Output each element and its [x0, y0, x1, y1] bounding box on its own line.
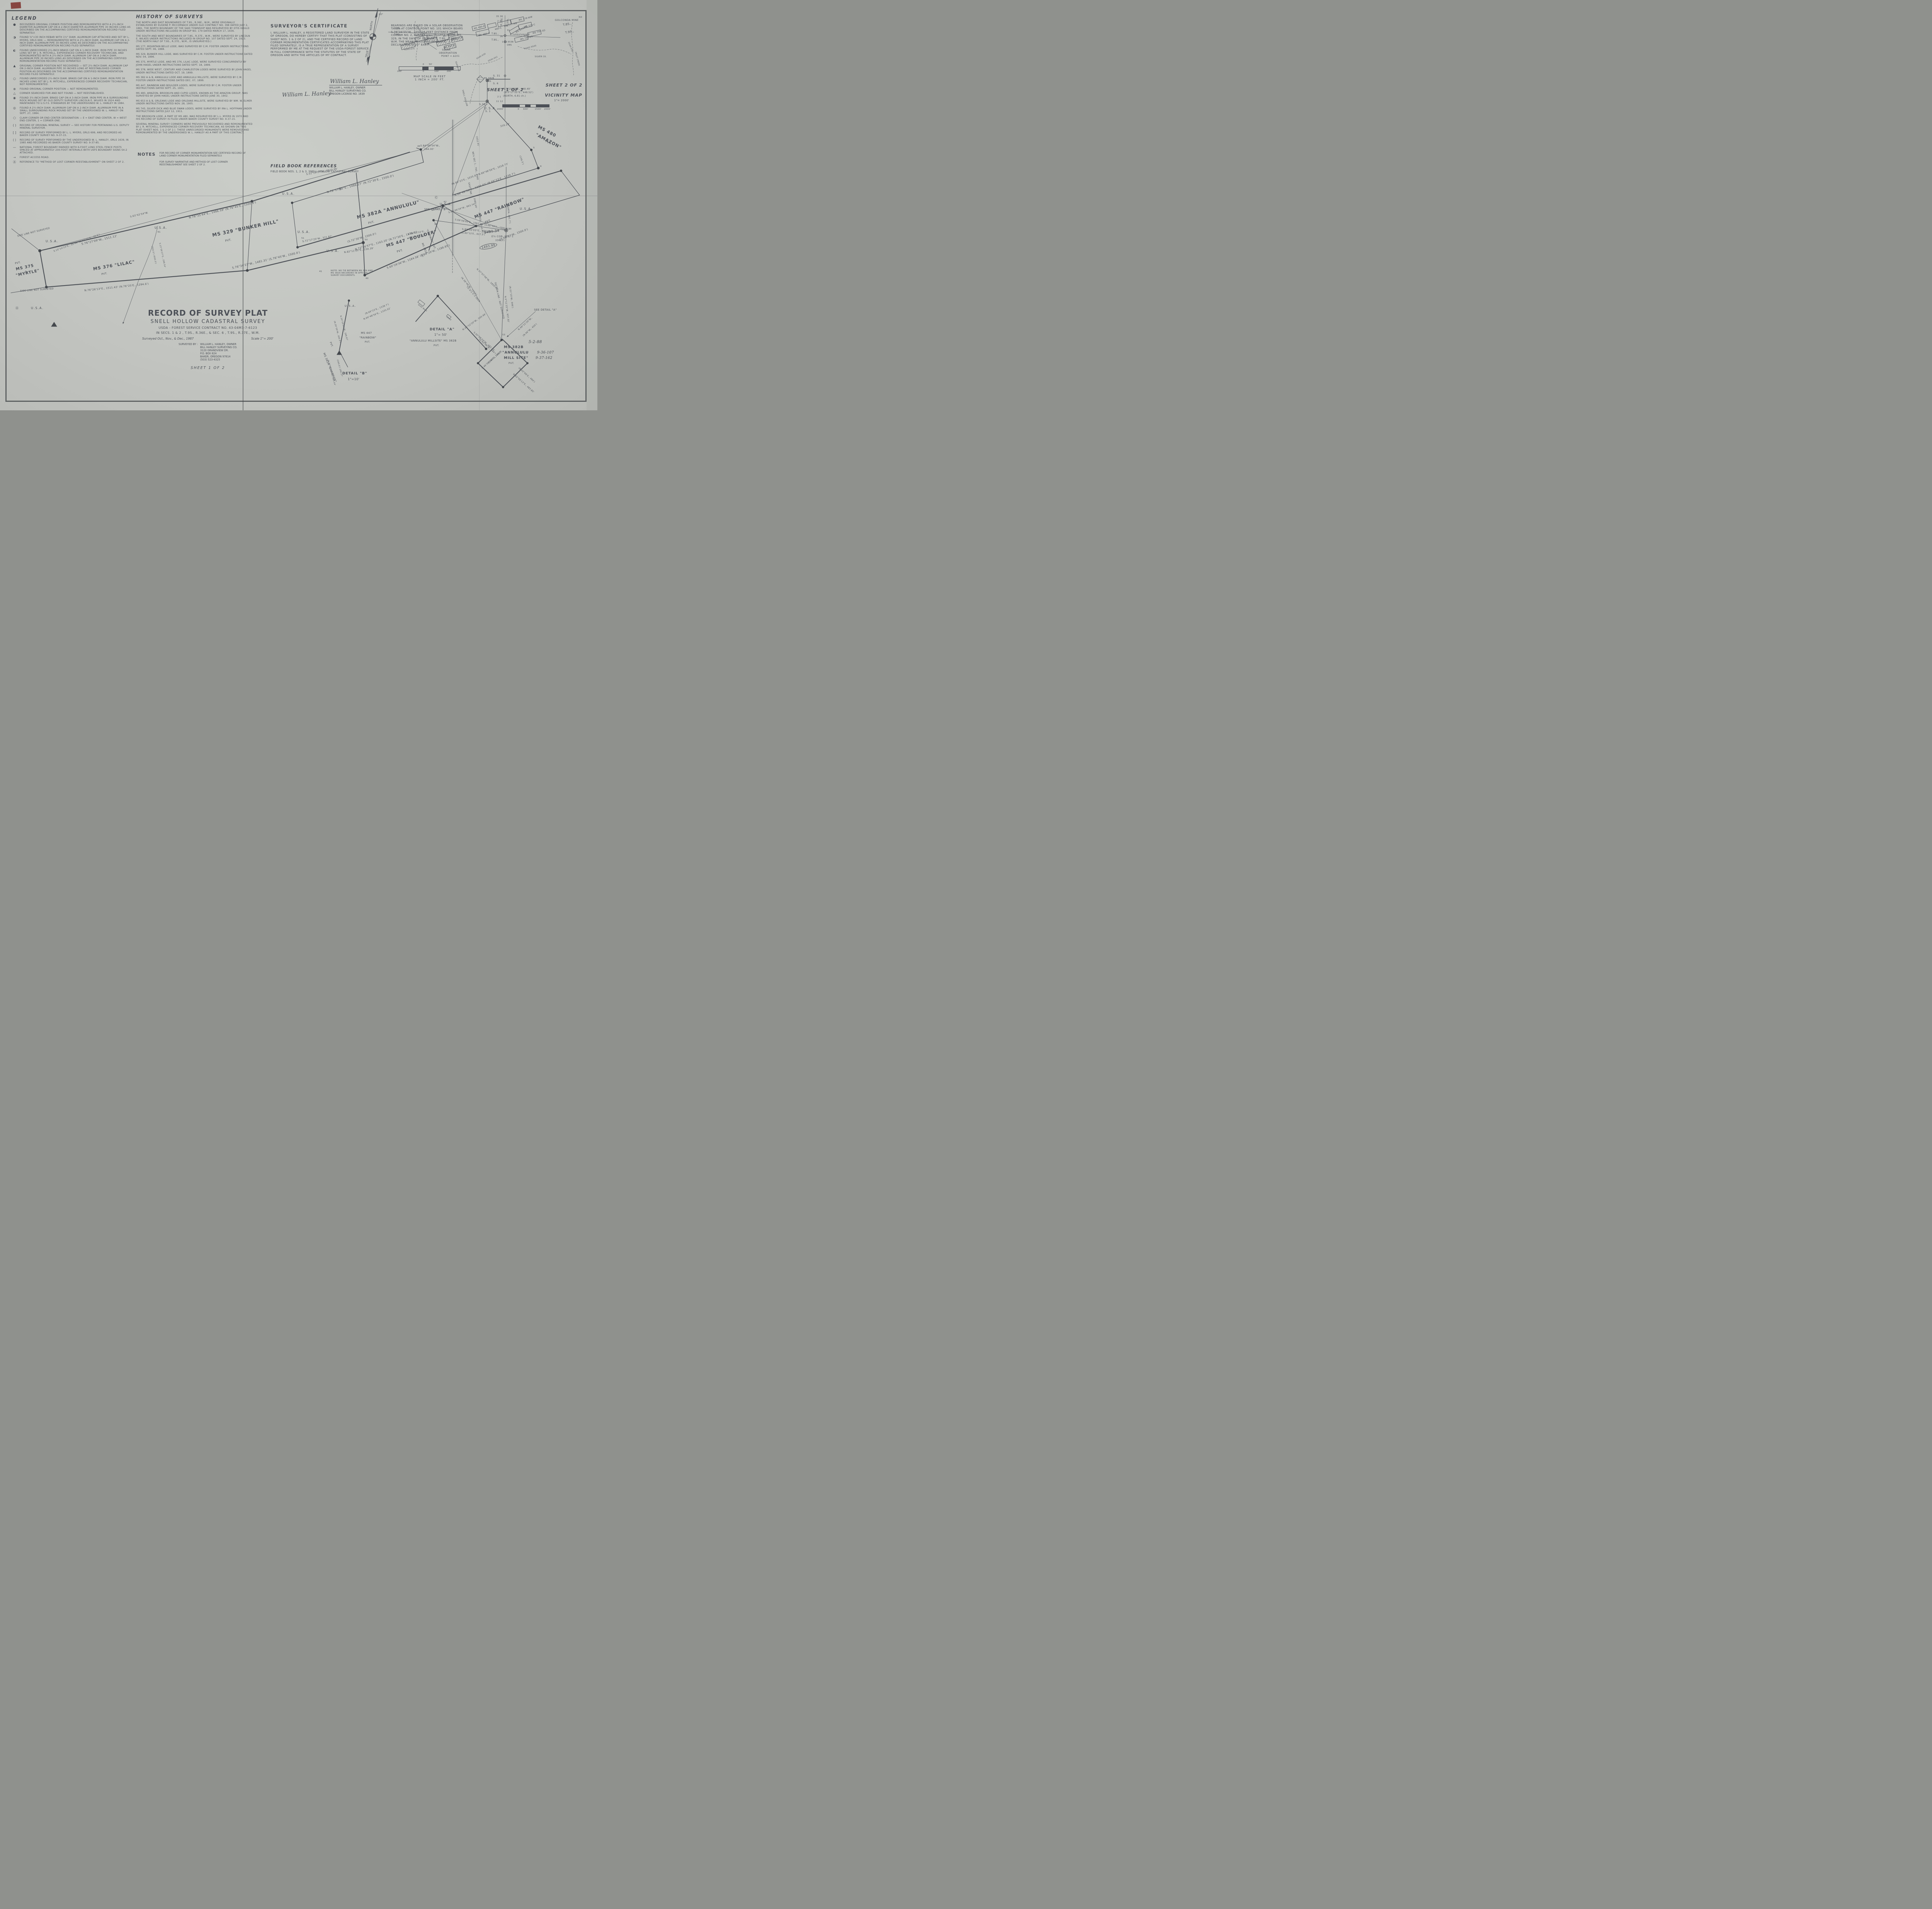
sheet2-label: SHEET 2 OF 2: [546, 83, 582, 88]
vicinity-map-scale: 1"= 2000': [554, 99, 569, 102]
plat-annotation: U.S.A.: [327, 249, 339, 253]
legend-symbol: ◎: [12, 107, 17, 115]
plat-annotation: MS 382B: [504, 345, 524, 349]
plat-annotation: 1"=10': [348, 377, 359, 381]
surveyed-by-label: SURVEYED BY :: [179, 343, 198, 361]
plat-annotation: 164.00': [424, 148, 434, 151]
legend-symbol: ⇢: [12, 156, 17, 159]
history-panel: HISTORY OF SURVEYS THE NORTH AND EAST BO…: [136, 14, 253, 136]
surveyed-dates: Surveyed Oct., Nov., & Dec., 1987: [142, 337, 194, 340]
map-scale-caption: MAP SCALE IN FEET: [399, 75, 461, 78]
legend-text: RECORD OF ORIGINAL MINERAL SURVEY — SEE …: [20, 124, 131, 129]
surveyed-by-line: 3120 GRANDVIEW DR.: [200, 349, 237, 352]
vicinity-label: T.8S.,: [492, 32, 499, 35]
legend-item: ◎FOUND A 2½-INCH DIAM. ALUMINUM CAP ON A…: [12, 107, 131, 115]
legend-item: ●RECOVERED ORIGINAL CORNER POSITION AND …: [12, 23, 131, 34]
plat-annotation: "RAINBOW": [359, 336, 376, 339]
history-paragraph: MS 382 A & B, ANNULULU LODE AND ANNULULU…: [136, 76, 253, 82]
vicinity-label: 31: [507, 29, 510, 32]
plat-annotation: DETAIL "B": [342, 372, 367, 376]
legend-text: FOUND ⅝"×30 INCH REBAR WITH 1½" DIAM. AL…: [20, 36, 131, 47]
plat-annotation: 46: [417, 145, 420, 148]
legend-text: FOUND ORIGINAL CORNER POSITION — NOT REM…: [20, 88, 99, 90]
vicinity-scale-label: 1500': [535, 108, 542, 110]
vicinity-label: AMS: [486, 80, 491, 83]
legend-symbol: ○: [12, 77, 17, 86]
scale-tick-label: 0: [423, 70, 424, 73]
vicinity-scale-label: 0: [518, 108, 519, 110]
surveyed-by-line: BILL HANLEY SURVEYING CO.: [200, 346, 237, 349]
vicinity-label: POINT = Δ101: [441, 55, 459, 58]
vicinity-label: SOLAR: [442, 49, 451, 51]
scale-tick-label: 200': [397, 70, 402, 73]
plat-annotation: 39: [509, 228, 512, 230]
plat-annotation: 51: [301, 237, 304, 240]
vicinity-label: GOLCONDA MINE: [555, 19, 578, 22]
history-paragraph: THE BROOKLYN LODE, A PART OF MS 480, WAS…: [136, 115, 253, 121]
legend-text: NATIONAL FOREST BOUNDARY MARKED WITH 6-F…: [20, 146, 131, 155]
vicinity-label: 6 (unsurveyed): [510, 33, 530, 36]
surveyor-signature: William L. Hanley: [329, 78, 382, 85]
signer-line: OREGON LICENSE NO. 1639: [329, 92, 395, 95]
plat-annotation: Ⓐ: [15, 306, 19, 310]
scale-bar: [399, 66, 461, 70]
legend-text: FOUND UNRECORDED 2½-INCH DIAM. BRASS CAP…: [20, 77, 131, 86]
vicinity-label: 35 36: [496, 15, 503, 18]
plat-annotation: Ⓒ: [435, 195, 438, 200]
plat-annotation: 50: [365, 239, 368, 241]
legend-text: FOUND 3½-INCH DIAM. BRASS CAP ON A 3-INC…: [20, 97, 131, 105]
plat-annotation: (NORTH, 6.81 ch.): [503, 95, 526, 97]
plat-annotation: S. 6: [493, 82, 498, 85]
plat-annotation: 38: [434, 223, 437, 226]
vicinity-label: T.8S.,: [394, 27, 401, 30]
location-line: IN SECS. 1 & 2 , T.9S., R.36E., & SEC. 6…: [142, 331, 274, 335]
legend-symbol: —: [12, 146, 17, 155]
legend-item: ⟨ ⟩RECORD OF SURVEY PERFORMED BY THE UND…: [12, 139, 131, 144]
vicinity-scale-bar: [502, 104, 549, 107]
history-title: HISTORY OF SURVEYS: [136, 14, 253, 19]
legend-symbol: ◉: [12, 97, 17, 105]
legend-item: ( )RECORD OF ORIGINAL MINERAL SURVEY — S…: [12, 124, 131, 129]
plat-annotation: MILL SITE": [504, 356, 529, 360]
plat-annotation: Ⓑ: [338, 187, 342, 191]
plat-annotation: 42: [444, 201, 447, 203]
plat-annotation: U.S.A.: [282, 192, 295, 195]
plat-annotation: U.S.A.: [46, 240, 58, 243]
legend-item: —NATIONAL FOREST BOUNDARY MARKED WITH 6-…: [12, 146, 131, 155]
title-block: RECORD OF SURVEY PLAT SNELL HOLLOW CADAS…: [142, 308, 274, 370]
plat-annotation: S. 31: [493, 74, 500, 77]
plat-annotation: PVT.: [434, 344, 439, 347]
plat-annotation: U.S.A.: [345, 304, 356, 308]
vicinity-label: 36: [500, 36, 503, 38]
vicinity-map-title: VICINITY MAP: [545, 93, 582, 98]
legend-text: RECORD OF SURVEY PERFORMED BY THE UNDERS…: [20, 139, 131, 144]
certificate-panel: SURVEYOR'S CERTIFICATE I, WILLIAM L. HAN…: [270, 23, 369, 57]
filing-date: 5-2-88: [529, 340, 542, 344]
vicinity-scale-label: 600': [523, 108, 529, 110]
legend-text: RECOVERED ORIGINAL CORNER POSITION AND R…: [20, 23, 131, 34]
plat-annotation: 41: [319, 270, 322, 273]
legend-symbol: ▲: [12, 65, 17, 76]
surveyed-by-line: WILLIAM L. HANLEY, OWNER: [200, 343, 237, 346]
plat-annotation: ⟨N.0°17'55"E., 448.52'⟩: [504, 92, 534, 94]
plat-annotation: DETAIL "A": [430, 328, 455, 331]
history-paragraph: MS 378, WIDE WEST, CENTURY AND CHARLESTO…: [136, 68, 253, 74]
history-paragraph: MS 447, RAINBOW AND BOULDER LODES, WERE …: [136, 84, 253, 90]
legend-text: CLAIM CORNER OR END CENTER DESIGNATION —…: [20, 117, 131, 122]
legend-item: ⬡CLAIM CORNER OR END CENTER DESIGNATION …: [12, 117, 131, 122]
plat-annotation: 40: [366, 277, 369, 280]
filing-no-2: 9-37-162: [536, 356, 553, 360]
scale-tick-label: 200': [447, 70, 451, 73]
legend-text: CORNER SEARCHED FOR AND NOT FOUND — NOT …: [20, 92, 105, 95]
legend-text: FOREST ACCESS ROAD.: [20, 156, 49, 159]
legend-symbol: Ⓐ: [12, 161, 17, 163]
plat-annotation: 5: [533, 147, 535, 149]
plat-annotation: "ANNULULU MILLSITE" MS 382B: [410, 339, 456, 342]
signer-line: WILLIAM L. HANLEY, OWNER: [329, 86, 395, 89]
legend-symbol: ⬡: [12, 117, 17, 122]
legend-item: ⒶREFERENCE TO "METHOD OF LOST CORNER REE…: [12, 161, 131, 163]
vicinity-label: MS 382B: [484, 77, 494, 80]
filing-no-1: 9-36-107: [537, 351, 554, 355]
history-paragraph: THE NORTH AND EAST BOUNDARIES OF T.9S., …: [136, 21, 253, 32]
legend-text: REFERENCE TO "METHOD OF LOST CORNER REES…: [20, 161, 124, 163]
plat-annotation: Ⓒ: [421, 253, 424, 258]
history-paragraph: MS 653 A & B, ORLEANS LODE AND ORLEANS M…: [136, 100, 253, 105]
vicinity-scale-label: 2000': [497, 108, 504, 110]
vicinity-label: 2 1: [497, 96, 501, 98]
plat-annotation: U.S.A.: [298, 230, 310, 234]
plat-annotation: U.S.A.: [31, 306, 44, 310]
legend-text: FOUND A 2½-INCH DIAM. ALUMINUM CAP ON A …: [20, 107, 131, 115]
signature-block: William L. Hanley WILLIAM L. HANLEY, OWN…: [329, 77, 395, 95]
plat-annotation: 1"= 50': [434, 333, 447, 337]
scale-tick-label: 0: [423, 63, 424, 66]
history-paragraph: MS 329, BUNKER HILL LODE, WAS SURVEYED B…: [136, 53, 253, 59]
plat-annotation: S. 1: [485, 110, 491, 113]
history-paragraph: MS 375, MYRTLE LODE, AND MS 376, LILAC L…: [136, 61, 253, 66]
note-paragraph: FOR SURVEY NARRATIVE AND METHOD OF LOST …: [160, 161, 252, 167]
legend-symbol: ⟨ ⟩: [12, 139, 17, 144]
note-paragraph: FOR RECORD OF CORNER MONUMENTATION SEE C…: [160, 152, 252, 158]
history-paragraph: MS 480, AMAZON, BROOKLYN AND CUPID LODES…: [136, 92, 253, 98]
contract-line: USDA - FOREST SERVICE CONTRACT NO. 43-04…: [142, 326, 274, 330]
legend-symbol: ◑: [12, 36, 17, 47]
notes-panel: NOTES FOR RECORD OF CORNER MONUMENTATION…: [138, 152, 253, 170]
legend-symbol: ●: [12, 23, 17, 34]
plat-annotation: "ANNULULU: [502, 351, 529, 355]
plat-annotation: (ONLY): [495, 239, 505, 242]
plat-annotation: 61: [158, 231, 161, 233]
vicinity-label: MS 653B-: [504, 41, 514, 43]
legend-item: [ ]RECORD OF SURVEY PERFORMED BY L. L. M…: [12, 131, 131, 137]
plat-annotation: S.36: [479, 103, 485, 106]
vicinity-label: T.9S.,: [492, 39, 499, 41]
plat-annotation: SEE DETAIL "B": [424, 208, 447, 211]
scale-tick-label: 100': [434, 70, 439, 73]
plat-scale: Scale 1"= 200': [251, 337, 274, 340]
legend-symbol: ⊗: [12, 88, 17, 90]
surveyed-by-line: P.O. BOX 824: [200, 352, 237, 355]
plat-annotation: SEE DETAIL "A": [534, 308, 557, 311]
legend-item: ⇢FOREST ACCESS ROAD.: [12, 156, 131, 159]
vicinity-label: 1: [502, 41, 503, 43]
survey-plat-sheet: LEGEND ●RECOVERED ORIGINAL CORNER POSITI…: [0, 0, 597, 410]
legend-title: LEGEND: [12, 15, 131, 21]
plat-annotation: S.84°00'54"W.,: [420, 144, 440, 147]
legend-text: FOUND UNRECORDED 2½-INCH BRASS CAP ON A …: [20, 49, 131, 63]
surveyed-by-line: (503) 523-4325: [200, 358, 237, 361]
sheet-number: SHEET 1 OF 2: [142, 366, 274, 370]
map-scale: 050' 200'0100'200' MAP SCALE IN FEET 1 I…: [399, 63, 461, 81]
legend-item: ◐FOUND UNRECORDED 2½-INCH BRASS CAP ON A…: [12, 49, 131, 63]
vicinity-label: RD: [579, 16, 582, 19]
legend-symbol: ◐: [12, 49, 17, 63]
legend-item: ○FOUND UNRECORDED 2½-INCH DIAM. BRASS CA…: [12, 77, 131, 86]
legend-symbol: △: [12, 92, 17, 95]
legend-item: ▲ORIGINAL CORNER POSITION NOT RECOVERED …: [12, 65, 131, 76]
vicinity-label: SILVER CK.: [535, 56, 547, 58]
plat-annotation: U.S.A.: [520, 207, 532, 211]
legend-panel: LEGEND ●RECOVERED ORIGINAL CORNER POSITI…: [12, 15, 131, 165]
legend-item: ⊗FOUND ORIGINAL CORNER POSITION — NOT RE…: [12, 88, 131, 90]
certificate-body: I, WILLIAM L. HANLEY, A REGISTERED LAND …: [270, 31, 369, 57]
plat-annotation: U.S.A.: [155, 226, 167, 229]
signer-line: BILL HANLEY SURVEYING CO.: [329, 89, 395, 92]
notes-title: NOTES: [138, 152, 156, 170]
legend-text: ORIGINAL CORNER POSITION NOT RECOVERED —…: [20, 65, 131, 76]
plat-annotation: 6: [540, 165, 542, 168]
vicinity-label: OBSERVATION: [439, 52, 457, 54]
plat-annotation: N.0°19'22"E., 448.49': [503, 88, 531, 90]
legend-symbol: [ ]: [12, 131, 17, 137]
history-paragraph: SEVERAL MINERAL SURVEY CORNERS WERE PREV…: [136, 123, 253, 134]
legend-item: ◑FOUND ⅝"×30 INCH REBAR WITH 1½" DIAM. A…: [12, 36, 131, 47]
plat-annotation: MS 447: [361, 331, 372, 335]
vicinity-scale-label: 2000': [544, 108, 551, 110]
plat-annotation: E¼ COR. SEC. 1: [492, 235, 514, 238]
legend-item: △CORNER SEARCHED FOR AND NOT FOUND — NOT…: [12, 92, 131, 95]
vicinity-label: 11 12: [496, 100, 503, 103]
legend-item: ◉FOUND 3½-INCH DIAM. BRASS CAP ON A 3-IN…: [12, 97, 131, 105]
certificate-title: SURVEYOR'S CERTIFICATE: [270, 23, 369, 29]
history-paragraph: THE SOUTH AND WEST BOUNDARIES OF T.8S., …: [136, 35, 253, 43]
plat-subtitle: SNELL HOLLOW CADASTRAL SURVEY: [142, 319, 274, 325]
plat-annotation: PVT.: [365, 341, 370, 343]
field-book-title: FIELD BOOK REFERENCES: [270, 164, 390, 168]
plat-annotation: NOTE: NO TIE BETWEEN MS 329 AND MS 382A …: [331, 270, 376, 277]
history-paragraph: MS 177, MOUNTAIN BELLE LODE, WAS SURVEYE…: [136, 45, 253, 51]
history-paragraph: MS 745, SILVER DICK AND BLUE SWAN LODES,…: [136, 107, 253, 113]
scale-tick-label: 50': [429, 63, 432, 66]
plat-annotation: 53: [502, 334, 505, 336]
compass-declination: 20°: [379, 13, 383, 16]
vicinity-label: 2 1: [497, 20, 501, 22]
legend-text: RECORD OF SURVEY PERFORMED BY L. L. MYER…: [20, 131, 131, 137]
surveyed-by-line: BAKER, OREGON 97814: [200, 355, 237, 358]
vicinity-label: T.9S.,: [394, 33, 401, 36]
plat-title: RECORD OF SURVEY PLAT: [142, 308, 274, 318]
legend-symbol: ( ): [12, 124, 17, 129]
plat-annotation: PVT.: [509, 362, 514, 365]
vicinity-label: OMS: [507, 44, 512, 46]
map-scale-ratio: 1 INCH = 200' FT.: [399, 78, 461, 81]
